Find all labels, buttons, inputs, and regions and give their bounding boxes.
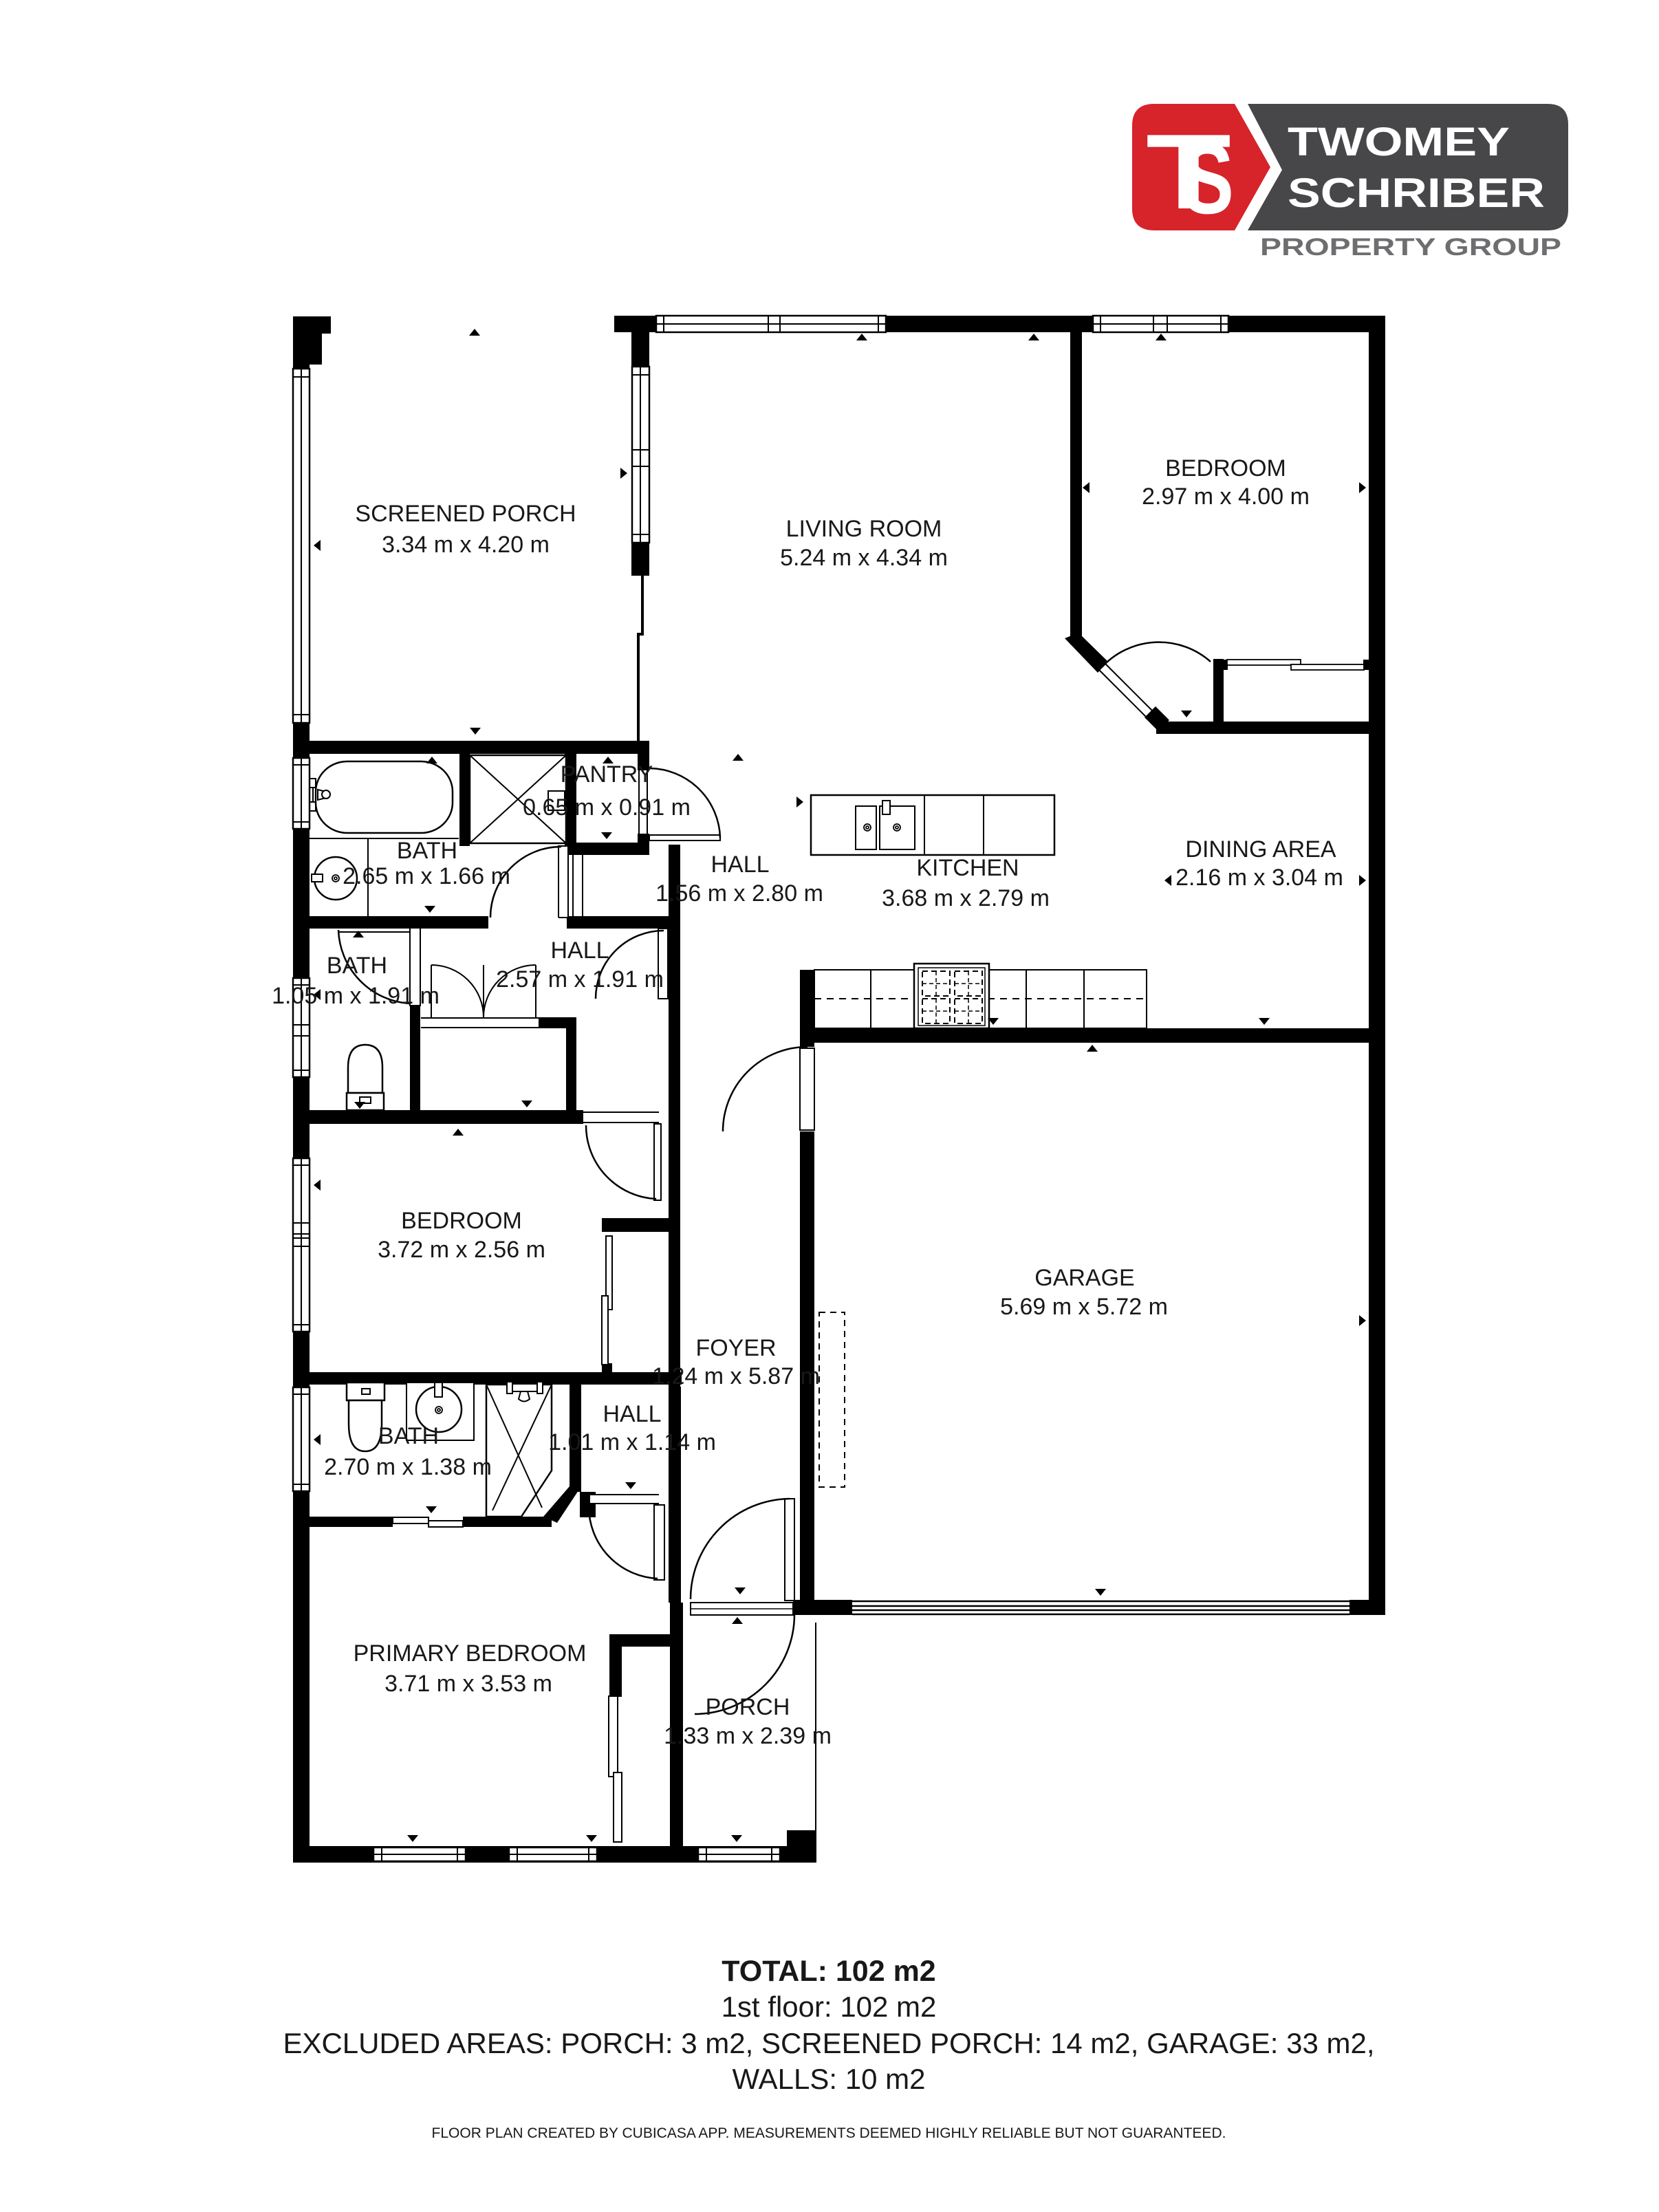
svg-text:PRIMARY BEDROOM: PRIMARY BEDROOM bbox=[354, 1640, 587, 1667]
svg-text:2.65 m x 1.66 m: 2.65 m x 1.66 m bbox=[343, 863, 510, 889]
svg-text:PROPERTY GROUP: PROPERTY GROUP bbox=[1260, 234, 1561, 261]
svg-text:1st floor: 102 m2: 1st floor: 102 m2 bbox=[722, 1991, 937, 2023]
svg-text:3.72 m x 2.56 m: 3.72 m x 2.56 m bbox=[378, 1237, 545, 1263]
svg-text:2.97 m x 4.00 m: 2.97 m x 4.00 m bbox=[1142, 484, 1310, 510]
svg-text:KITCHEN: KITCHEN bbox=[916, 855, 1019, 881]
svg-text:WALLS: 10 m2: WALLS: 10 m2 bbox=[733, 2063, 926, 2095]
svg-text:3.71 m x 3.53 m: 3.71 m x 3.53 m bbox=[384, 1671, 552, 1697]
svg-text:1.56 m x 2.80 m: 1.56 m x 2.80 m bbox=[655, 880, 823, 907]
svg-text:2.16 m x 3.04 m: 2.16 m x 3.04 m bbox=[1175, 865, 1343, 891]
svg-text:BATH: BATH bbox=[327, 953, 387, 979]
svg-text:1.05 m x 1.91 m: 1.05 m x 1.91 m bbox=[272, 983, 440, 1009]
svg-text:EXCLUDED AREAS: PORCH: 3 m2, S: EXCLUDED AREAS: PORCH: 3 m2, SCREENED PO… bbox=[283, 2027, 1374, 2059]
svg-text:PANTRY: PANTRY bbox=[561, 761, 653, 788]
svg-text:TWOMEY: TWOMEY bbox=[1288, 120, 1510, 164]
svg-text:HALL: HALL bbox=[711, 852, 769, 878]
svg-text:0.65 m x 0.91 m: 0.65 m x 0.91 m bbox=[523, 794, 691, 821]
svg-text:3.68 m x 2.79 m: 3.68 m x 2.79 m bbox=[882, 885, 1050, 911]
svg-text:SCREENED PORCH: SCREENED PORCH bbox=[355, 501, 576, 527]
svg-text:1.01 m x 1.14 m: 1.01 m x 1.14 m bbox=[548, 1429, 716, 1455]
svg-text:SCHRIBER: SCHRIBER bbox=[1288, 170, 1545, 216]
svg-text:2.70 m x 1.38 m: 2.70 m x 1.38 m bbox=[324, 1454, 492, 1480]
svg-text:1.24 m x 5.87 m: 1.24 m x 5.87 m bbox=[652, 1363, 820, 1389]
svg-text:5.69 m x 5.72 m: 5.69 m x 5.72 m bbox=[1000, 1294, 1168, 1320]
svg-text:DINING AREA: DINING AREA bbox=[1185, 836, 1336, 863]
svg-text:PORCH: PORCH bbox=[706, 1694, 790, 1720]
svg-text:BEDROOM: BEDROOM bbox=[1165, 455, 1286, 481]
svg-text:FOYER: FOYER bbox=[695, 1335, 776, 1361]
svg-text:BATH: BATH bbox=[397, 838, 457, 864]
svg-text:5.24 m x 4.34 m: 5.24 m x 4.34 m bbox=[780, 545, 948, 571]
svg-text:2.57 m x 1.91 m: 2.57 m x 1.91 m bbox=[496, 966, 664, 993]
svg-text:HALL: HALL bbox=[603, 1401, 661, 1427]
svg-text:FLOOR PLAN CREATED BY CUBICASA: FLOOR PLAN CREATED BY CUBICASA APP. MEAS… bbox=[432, 2125, 1226, 2141]
svg-text:3.34 m x 4.20 m: 3.34 m x 4.20 m bbox=[382, 532, 550, 558]
svg-text:BEDROOM: BEDROOM bbox=[401, 1208, 522, 1234]
svg-text:BATH: BATH bbox=[378, 1423, 439, 1449]
svg-text:HALL: HALL bbox=[550, 937, 609, 964]
svg-text:1.33 m x 2.39 m: 1.33 m x 2.39 m bbox=[664, 1723, 832, 1749]
svg-text:TOTAL: 102 m2: TOTAL: 102 m2 bbox=[722, 1955, 935, 1988]
svg-text:S: S bbox=[1182, 123, 1234, 235]
svg-text:LIVING ROOM: LIVING ROOM bbox=[786, 516, 942, 542]
svg-text:GARAGE: GARAGE bbox=[1034, 1265, 1134, 1291]
